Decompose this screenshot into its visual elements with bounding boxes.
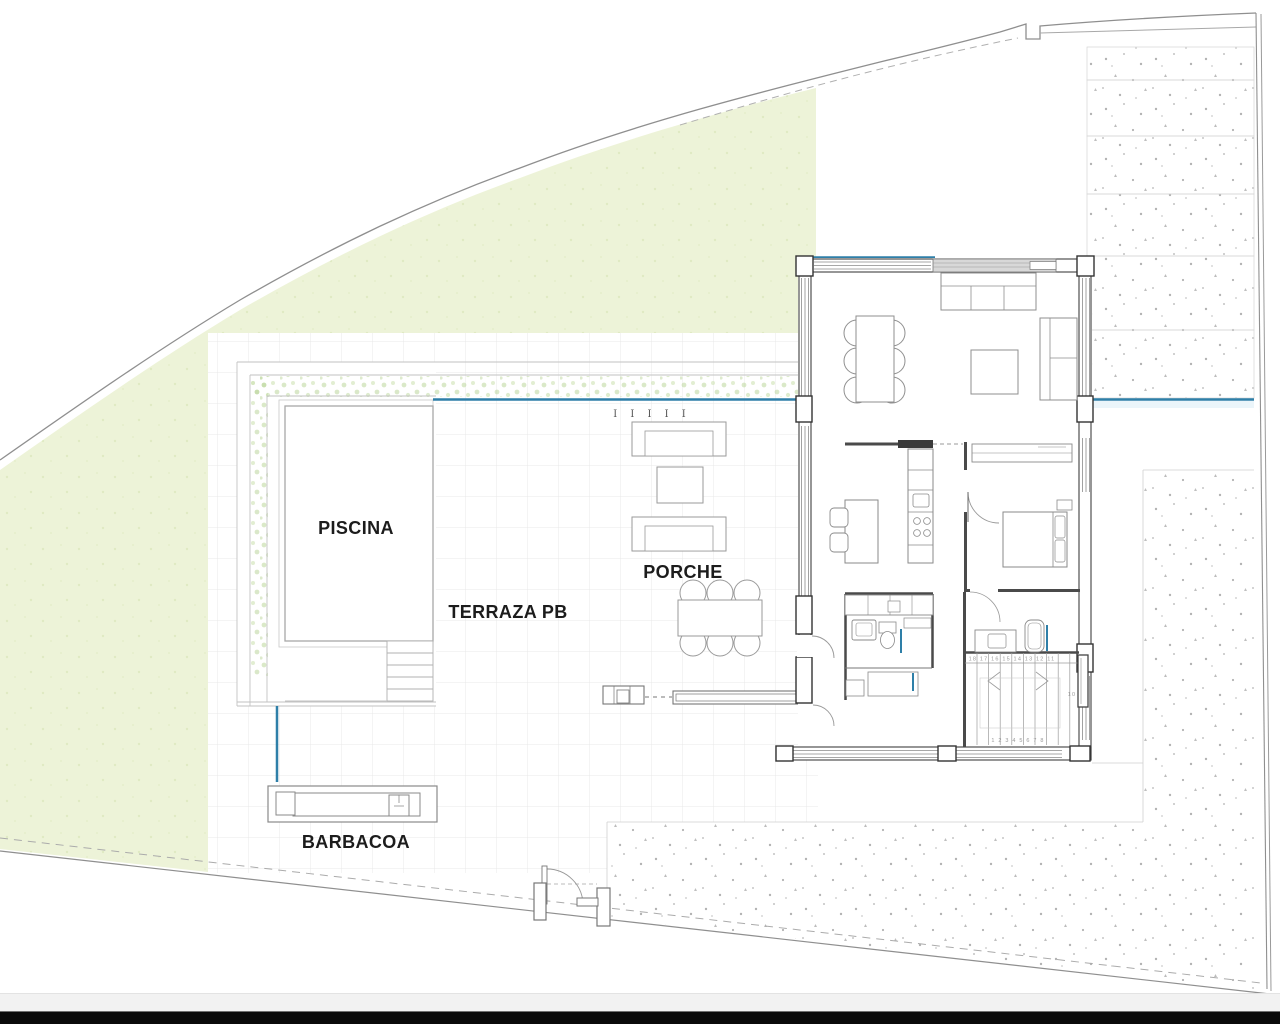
stair-handrail xyxy=(1078,655,1088,707)
coffee-table xyxy=(971,350,1018,394)
floor-plan-page: 18 17 16 15 14 13 12 11 1 2 3 4 5 6 7 8 … xyxy=(0,0,1280,1024)
side-table xyxy=(657,467,703,503)
gravel-beds-right xyxy=(1087,47,1254,398)
sofa-side xyxy=(1040,318,1077,400)
hedge-top xyxy=(250,376,798,397)
floor-plan-drawing: 18 17 16 15 14 13 12 11 1 2 3 4 5 6 7 8 … xyxy=(0,0,1280,1024)
kitchen-island xyxy=(845,500,878,563)
entrance-gate xyxy=(534,866,610,926)
fence-post-marks: I I I I I xyxy=(613,409,690,420)
sliding-door xyxy=(933,259,1056,272)
stair-numbers-bottom: 1 2 3 4 5 6 7 8 xyxy=(991,738,1044,744)
hedge-left xyxy=(250,376,268,676)
terrace-label: TERRAZA PB xyxy=(448,602,567,622)
stair-number-mid: 10 xyxy=(1068,692,1077,698)
status-strip xyxy=(0,993,1280,1013)
stool xyxy=(830,508,848,527)
porch-label: PORCHE xyxy=(643,562,722,582)
pool-label: PISCINA xyxy=(318,518,394,538)
barbecue-unit xyxy=(268,786,437,822)
nightstand xyxy=(1057,500,1072,510)
porch-dining-set xyxy=(678,580,762,656)
house: 18 17 16 15 14 13 12 11 1 2 3 4 5 6 7 8 … xyxy=(776,256,1094,761)
dining-table xyxy=(856,316,894,402)
taskbar[interactable] xyxy=(0,1012,1280,1024)
sofa xyxy=(941,273,1036,310)
stair-numbers-top: 18 17 16 15 14 13 12 11 xyxy=(969,657,1056,663)
stool xyxy=(830,533,848,552)
barbecue-label: BARBACOA xyxy=(302,832,410,852)
